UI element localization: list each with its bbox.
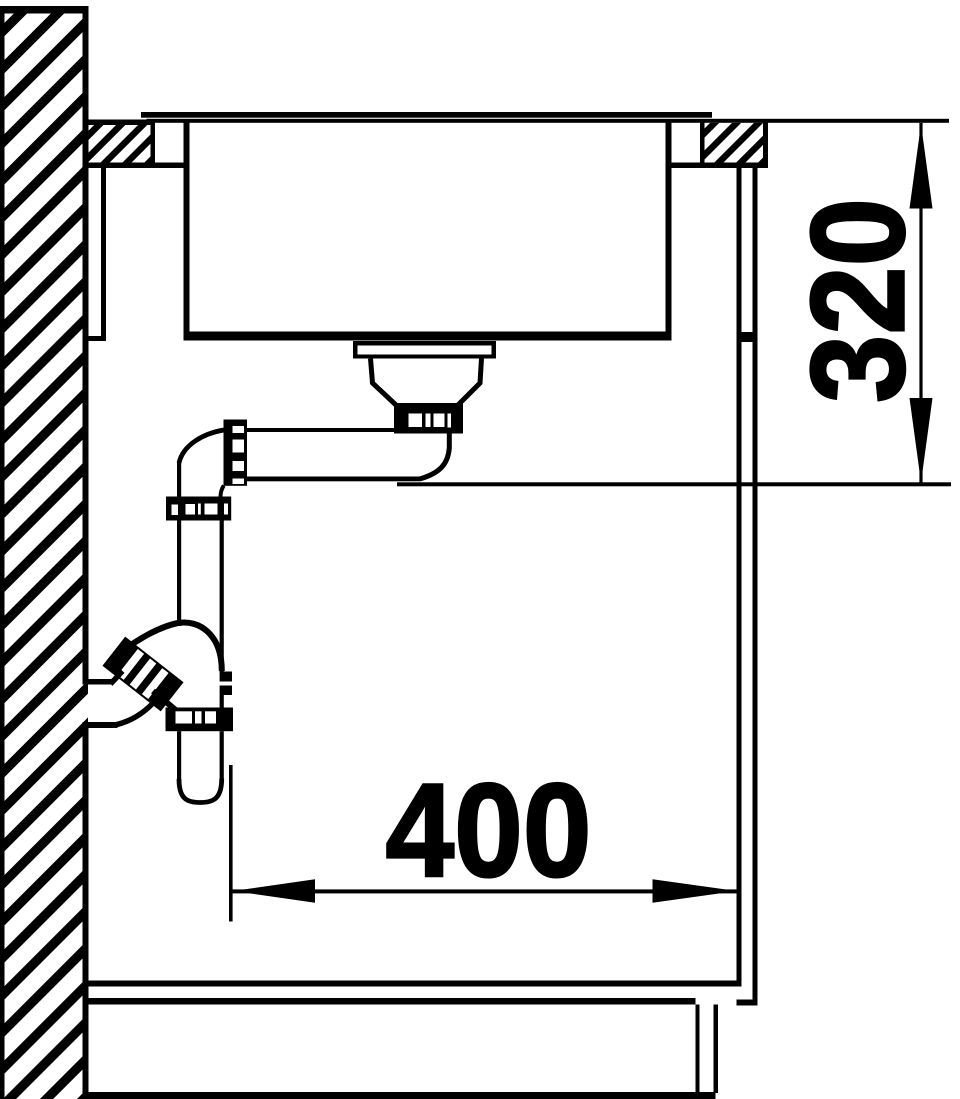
svg-text:320: 320 bbox=[785, 198, 933, 403]
svg-text:400: 400 bbox=[386, 757, 592, 905]
